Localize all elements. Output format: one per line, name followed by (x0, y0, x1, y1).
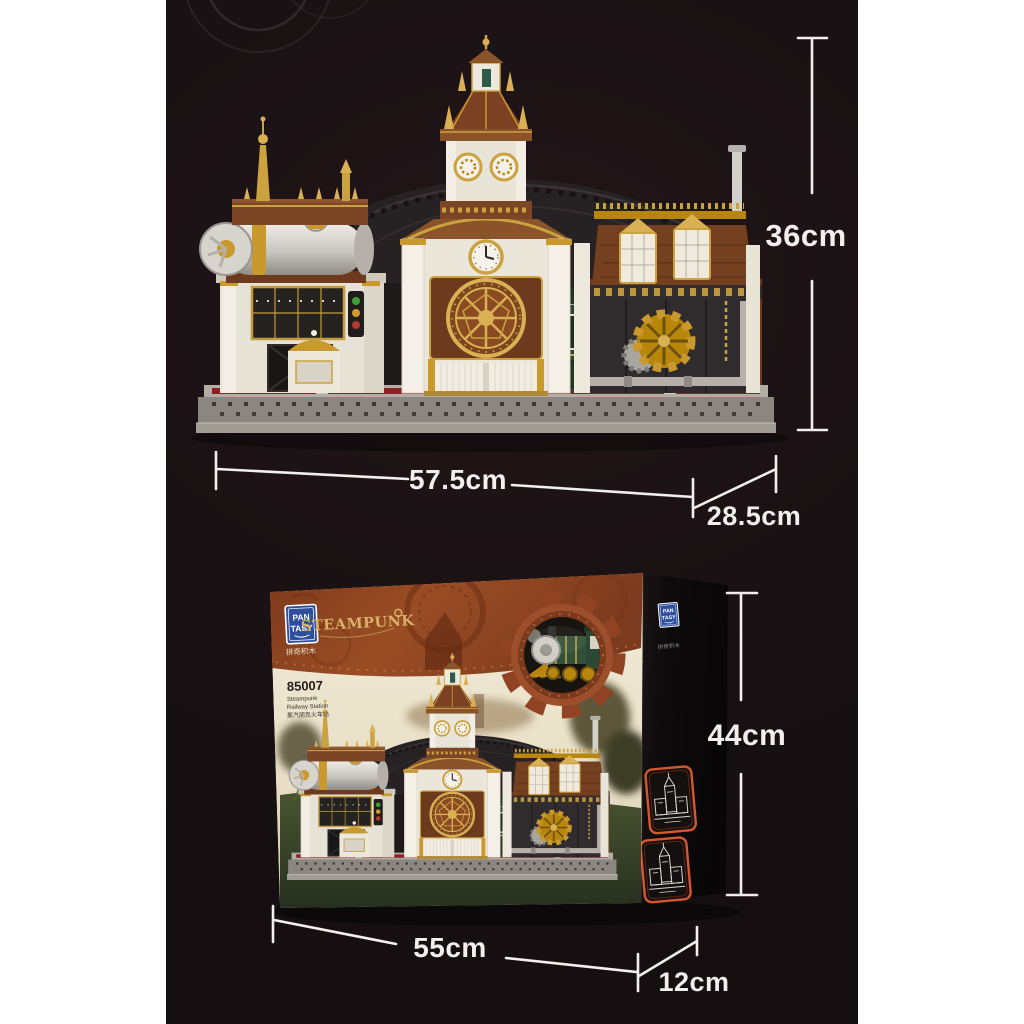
box-depth-label: 12cm (624, 969, 764, 996)
sku-number: 85007 (287, 678, 324, 694)
product-name-line1: Steampunk (287, 696, 319, 703)
assembled-model-photo (190, 35, 790, 452)
box-width-label: 55cm (380, 934, 520, 962)
product-showcase-image: PAN TASY (0, 0, 1024, 1024)
artwork-layer: PAN TASY (0, 0, 1024, 1024)
model-height-label: 36cm (736, 220, 876, 251)
side-thumbnail-2 (640, 837, 691, 903)
box-render: 拼奇积木 (270, 573, 740, 926)
model-depth-label: 28.5cm (684, 503, 824, 530)
smoke-rings-decoration (184, 0, 378, 52)
box-height-label: 44cm (677, 721, 817, 751)
front-brand-cn: 拼奇积木 (286, 645, 317, 657)
side-brand-logo (658, 602, 679, 627)
model-width-label: 57.5cm (388, 466, 528, 494)
side-thumbnail-1 (645, 766, 696, 834)
